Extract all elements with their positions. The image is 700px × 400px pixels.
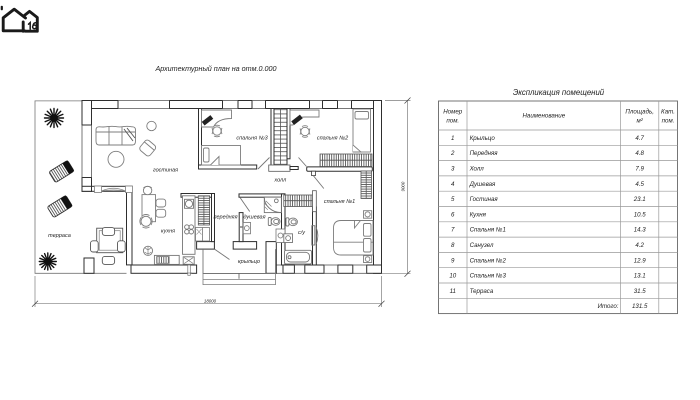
svg-text:6: 6	[451, 211, 455, 218]
svg-text:Гостиная: Гостиная	[470, 196, 499, 203]
svg-text:7: 7	[451, 227, 455, 234]
svg-text:4.7: 4.7	[635, 135, 644, 142]
svg-text:31.5: 31.5	[634, 288, 647, 295]
svg-text:Спальня №1: Спальня №1	[470, 227, 506, 234]
svg-text:18000: 18000	[204, 298, 217, 303]
svg-text:спальня №1: спальня №1	[324, 199, 355, 205]
svg-text:Площадь,: Площадь,	[625, 109, 654, 116]
svg-text:4.2: 4.2	[635, 242, 644, 249]
svg-text:спальня №2: спальня №2	[317, 136, 348, 142]
svg-text:13.1: 13.1	[634, 273, 646, 280]
svg-text:Кат.: Кат.	[661, 109, 675, 116]
svg-text:Архитектурный план на отм.0.00: Архитектурный план на отм.0.000	[155, 64, 277, 73]
svg-text:Терраса: Терраса	[470, 288, 494, 295]
svg-text:8: 8	[451, 242, 455, 249]
svg-text:м²: м²	[637, 118, 644, 125]
svg-text:2: 2	[450, 150, 455, 157]
svg-text:1: 1	[451, 135, 454, 142]
svg-text:холл: холл	[273, 178, 286, 184]
svg-text:Номер: Номер	[443, 109, 463, 116]
svg-text:Итого:: Итого:	[598, 303, 619, 310]
svg-text:спальня №3: спальня №3	[236, 136, 268, 142]
svg-text:Передняя: Передняя	[470, 150, 499, 157]
svg-text:3: 3	[451, 166, 455, 173]
svg-text:Спальня №3: Спальня №3	[470, 273, 507, 280]
svg-text:14.3: 14.3	[634, 227, 647, 234]
svg-text:7.9: 7.9	[635, 166, 644, 173]
svg-text:4.8: 4.8	[635, 150, 644, 157]
svg-text:терраса: терраса	[48, 233, 71, 239]
svg-text:пом.: пом.	[446, 118, 459, 125]
svg-text:11: 11	[450, 288, 456, 295]
svg-text:12.9: 12.9	[634, 257, 647, 264]
svg-text:23.1: 23.1	[633, 196, 646, 203]
svg-text:гостиная: гостиная	[153, 168, 178, 174]
svg-text:4.5: 4.5	[635, 181, 644, 188]
svg-text:Холл: Холл	[469, 166, 485, 173]
svg-text:крыльцо: крыльцо	[238, 259, 260, 265]
svg-text:10: 10	[449, 273, 456, 280]
svg-text:Душевая: Душевая	[469, 181, 496, 188]
svg-text:Спальня №2: Спальня №2	[470, 257, 507, 264]
svg-text:передняя: передняя	[213, 215, 237, 221]
svg-text:Экспликация помещений: Экспликация помещений	[513, 88, 605, 97]
svg-text:9000: 9000	[401, 181, 406, 191]
svg-text:131.5: 131.5	[632, 303, 648, 310]
svg-text:9: 9	[451, 257, 455, 264]
svg-text:Крыльцо: Крыльцо	[470, 135, 496, 142]
svg-text:Наименование: Наименование	[522, 113, 565, 120]
svg-text:Кухня: Кухня	[470, 211, 487, 218]
svg-text:пом.: пом.	[662, 118, 675, 125]
svg-text:4: 4	[451, 181, 455, 188]
svg-text:кухня: кухня	[161, 229, 175, 235]
svg-text:Санузел: Санузел	[470, 242, 494, 249]
svg-text:душевая: душевая	[243, 215, 265, 221]
svg-text:5: 5	[451, 196, 455, 203]
svg-text:10.5: 10.5	[634, 211, 647, 218]
